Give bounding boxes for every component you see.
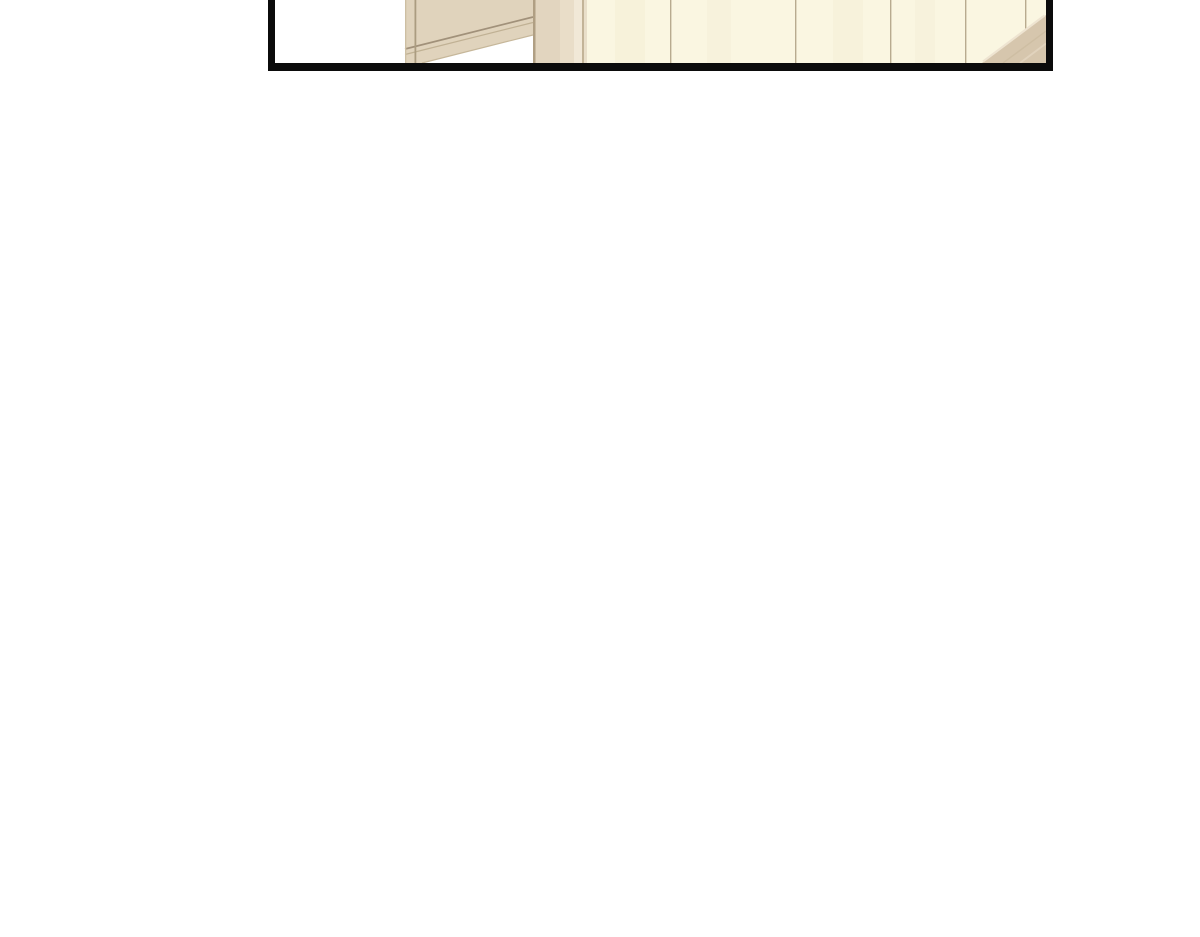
panel-border-right [1046, 0, 1053, 71]
panel-border-bottom [268, 63, 1053, 71]
wardrobe-grain-streak [833, 0, 863, 63]
comic-panel [268, 0, 1053, 71]
wardrobe-doors-base [587, 0, 1046, 63]
wardrobe-grain-streak [707, 0, 731, 63]
wardrobe-doors [587, 0, 1046, 63]
wardrobe-door-seam-2 [795, 0, 796, 63]
wardrobe-door-seam-1 [670, 0, 671, 63]
door-rail-left-edge [405, 0, 406, 63]
webtoon-reader-page [0, 0, 1200, 937]
door-frame-post-highlight [574, 0, 582, 63]
door-frame-post [533, 0, 587, 63]
wardrobe-door-seam-3 [890, 0, 891, 63]
wardrobe-grain-streak [915, 0, 935, 63]
door-rail-right-edge [415, 0, 417, 63]
wardrobe-door-seam-4 [965, 0, 966, 63]
door-frame-post-right-sliver [584, 0, 587, 63]
wardrobe-grain-streak [615, 0, 645, 63]
door-frame-post-shadow-left [533, 0, 536, 63]
door-frame-post-dark-line [582, 0, 584, 63]
comic-panel-art [268, 0, 1053, 71]
panel-border-left [268, 0, 275, 71]
door-frame-post-mid-light [560, 0, 574, 63]
